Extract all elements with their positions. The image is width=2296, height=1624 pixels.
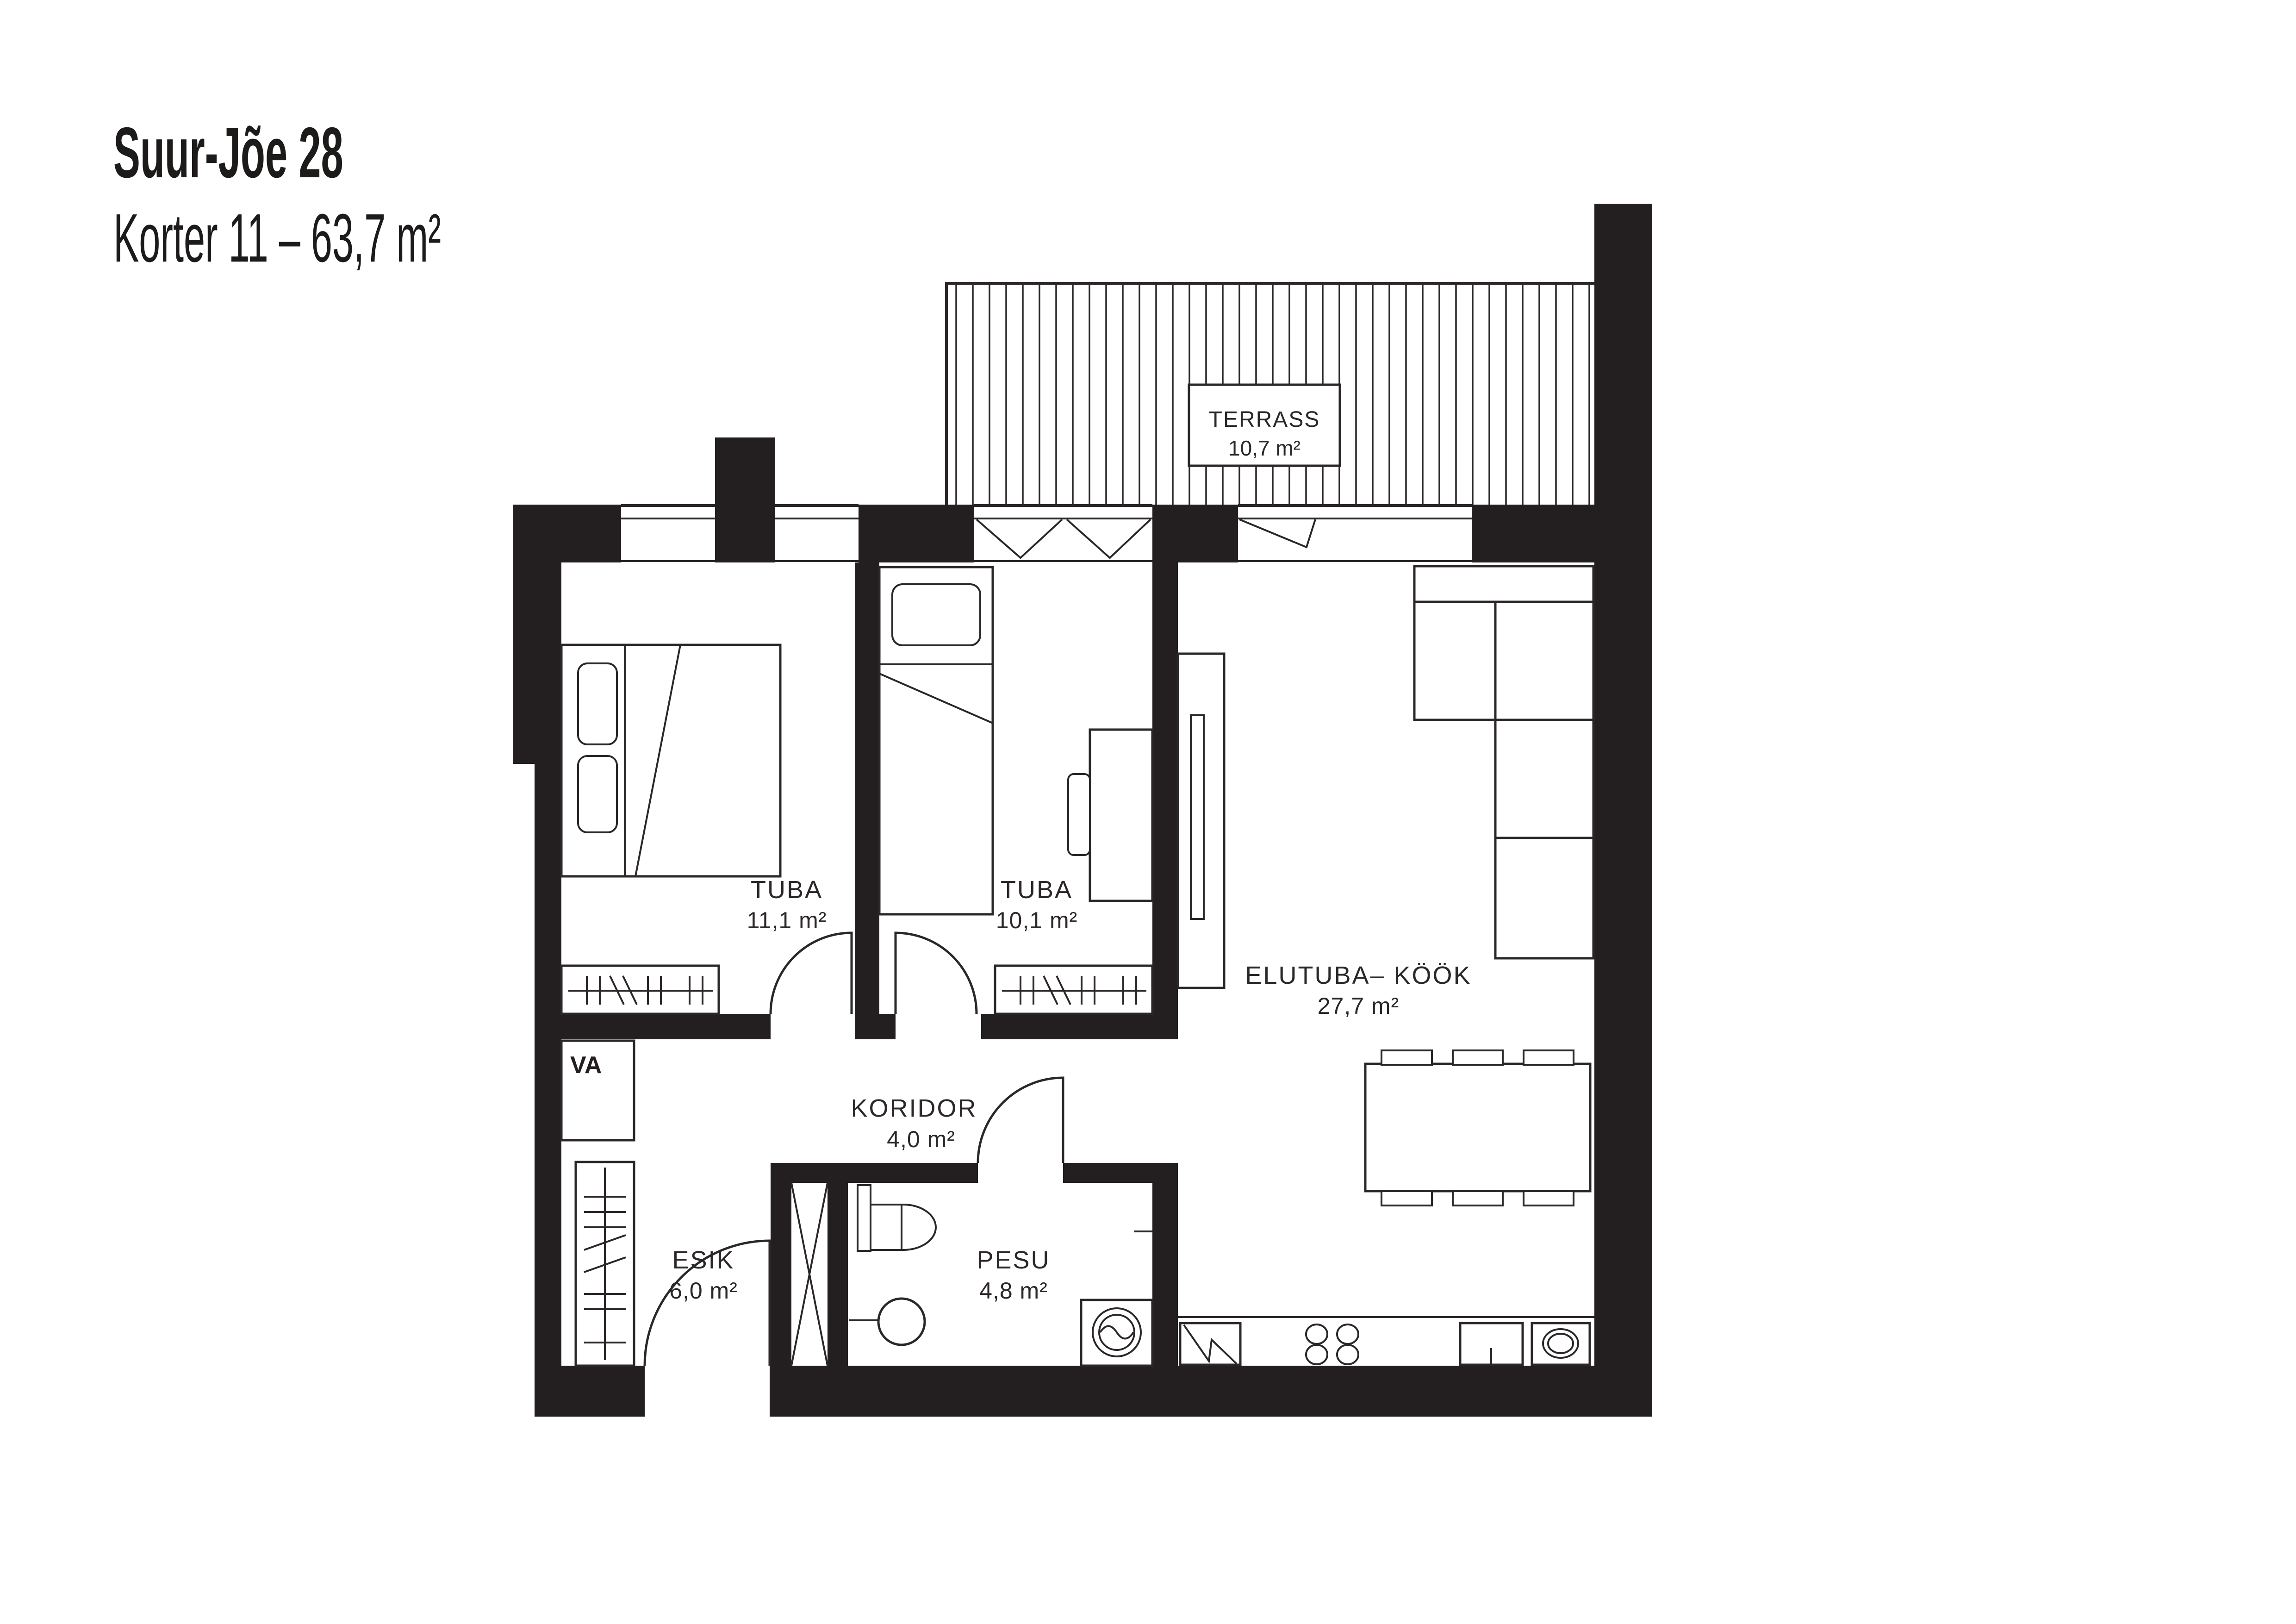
wall-bedrooms-koridor-2 — [855, 1014, 896, 1039]
wall-bedrooms-koridor-1 — [561, 1014, 771, 1039]
dining-set — [1365, 1050, 1590, 1206]
door-tuba1 — [771, 933, 852, 1014]
desk — [1090, 730, 1152, 901]
sofa-seat-left — [1414, 602, 1495, 720]
washing-machine — [1081, 1300, 1152, 1366]
terrace-name: TERRASS — [1209, 407, 1320, 432]
terrace-area: 10,7 m² — [1228, 436, 1300, 460]
wall-pesu-top-1 — [771, 1163, 978, 1183]
sofa-seat-mid — [1495, 720, 1593, 838]
sofa-seat-corner — [1495, 602, 1593, 720]
wall-top-2 — [859, 505, 974, 562]
tuba1-area: 11,1 m² — [747, 907, 827, 933]
toilet-cistern — [858, 1185, 871, 1251]
door-pesu — [978, 1078, 1063, 1163]
terrace: TERRASS 10,7 m² — [946, 283, 1594, 505]
shaft-cross-icon — [791, 1183, 828, 1366]
koridor-name: KORIDOR — [851, 1094, 977, 1122]
washbasin — [849, 1299, 925, 1345]
door-arc-tuba1 — [771, 933, 852, 1014]
label-pesu: PESU 4,8 m² — [977, 1246, 1050, 1304]
burner-4 — [1337, 1345, 1358, 1364]
pillow-left-2 — [578, 756, 617, 832]
kitchen-sink — [1460, 1323, 1523, 1365]
wall-bedroom-partition — [855, 562, 879, 1039]
elutuba-area: 27,7 m² — [1318, 993, 1400, 1019]
dining-chair-2 — [1453, 1050, 1503, 1065]
wall-shaft-right — [828, 1163, 848, 1366]
dining-chair-1 — [1381, 1050, 1432, 1065]
electrical-panel — [1180, 1323, 1240, 1365]
esik-area: 6,0 m² — [669, 1278, 738, 1304]
label-elutuba: ELUTUBA– KÖÖK 27,7 m² — [1245, 962, 1471, 1019]
window-opening-marks-tuba2 — [977, 519, 1151, 558]
label-koridor: KORIDOR 4,0 m² — [851, 1094, 977, 1152]
furniture-tuba1 — [561, 645, 780, 1014]
va-cabinet-label: VA — [570, 1052, 602, 1079]
label-tuba2: TUBA 10,1 m² — [996, 876, 1078, 933]
hob — [1306, 1324, 1358, 1364]
koridor-area: 4,0 m² — [887, 1126, 955, 1152]
pesu-area: 4,8 m² — [979, 1278, 1048, 1304]
furniture-tuba2 — [879, 567, 1152, 1014]
sofa-seat-bottom — [1495, 838, 1593, 958]
corner-sofa — [1414, 566, 1593, 958]
ventilation-shaft — [791, 1183, 828, 1366]
dining-table — [1365, 1064, 1590, 1191]
round-sink-inner — [1548, 1334, 1573, 1353]
va-cabinet: VA — [561, 1041, 634, 1140]
wall-shaft-left — [771, 1163, 791, 1366]
terrace-label-box: TERRASS 10,7 m² — [1189, 385, 1340, 466]
tuba2-area: 10,1 m² — [996, 907, 1078, 933]
dining-chair-5 — [1453, 1191, 1503, 1206]
wall-bottom-left — [535, 1366, 645, 1417]
furniture-pesu — [849, 1185, 1152, 1366]
esik-name: ESIK — [672, 1246, 734, 1274]
wall-top-3 — [1152, 505, 1238, 562]
washbasin-bowl — [878, 1299, 925, 1345]
toilet — [858, 1185, 936, 1251]
sofa-backrest — [1414, 566, 1593, 602]
single-bed-pillow — [892, 584, 980, 645]
tuba1-name: TUBA — [751, 876, 823, 904]
desk-chair — [1068, 774, 1090, 855]
title-block: Suur-Jõe 28 Korter 11 – 63,7 m² — [113, 112, 441, 276]
door-tuba2 — [896, 933, 977, 1014]
elutuba-name: ELUTUBA– KÖÖK — [1245, 962, 1471, 989]
burner-3 — [1306, 1345, 1327, 1364]
round-sink-unit — [1532, 1323, 1590, 1365]
door-arc-tuba2 — [896, 933, 977, 1014]
label-esik: ESIK 6,0 m² — [669, 1246, 738, 1304]
kitchen-run — [1178, 1317, 1594, 1365]
furniture-esik: VA — [561, 1041, 634, 1366]
wall-left-upper — [513, 505, 561, 764]
plan-title: Suur-Jõe 28 — [113, 112, 343, 193]
tv-screen — [1191, 715, 1204, 919]
plan-subtitle: Korter 11 – 63,7 m² — [113, 200, 441, 276]
wall-tuba2-living — [1152, 562, 1178, 1039]
pesu-name: PESU — [977, 1246, 1050, 1274]
wall-left-lower — [535, 764, 561, 1366]
door-arc-pesu — [978, 1078, 1063, 1163]
burner-2 — [1337, 1324, 1358, 1344]
pillow-left-1 — [578, 663, 617, 744]
wall-chimney-pier — [715, 437, 775, 562]
tuba2-name: TUBA — [1001, 876, 1073, 904]
dining-chair-6 — [1524, 1191, 1574, 1206]
dining-chair-3 — [1524, 1050, 1574, 1065]
wall-right — [1594, 204, 1652, 1417]
tv-bench — [1178, 654, 1224, 988]
burner-1 — [1306, 1324, 1327, 1344]
wardrobe-tuba1 — [561, 966, 719, 1014]
hallway-wardrobe — [576, 1162, 634, 1366]
wall-bedrooms-koridor-3 — [981, 1014, 1178, 1039]
wall-bottom-right — [770, 1366, 1652, 1417]
label-tuba1: TUBA 11,1 m² — [747, 876, 827, 933]
dining-chair-4 — [1381, 1191, 1432, 1206]
window-opening-mark-living — [1239, 519, 1315, 547]
wardrobe-tuba2 — [995, 966, 1152, 1014]
toilet-bowl — [871, 1205, 936, 1250]
floor-plan-canvas: Suur-Jõe 28 Korter 11 – 63,7 m² TERRASS … — [0, 0, 2296, 1624]
wall-pesu-right — [1152, 1163, 1178, 1366]
